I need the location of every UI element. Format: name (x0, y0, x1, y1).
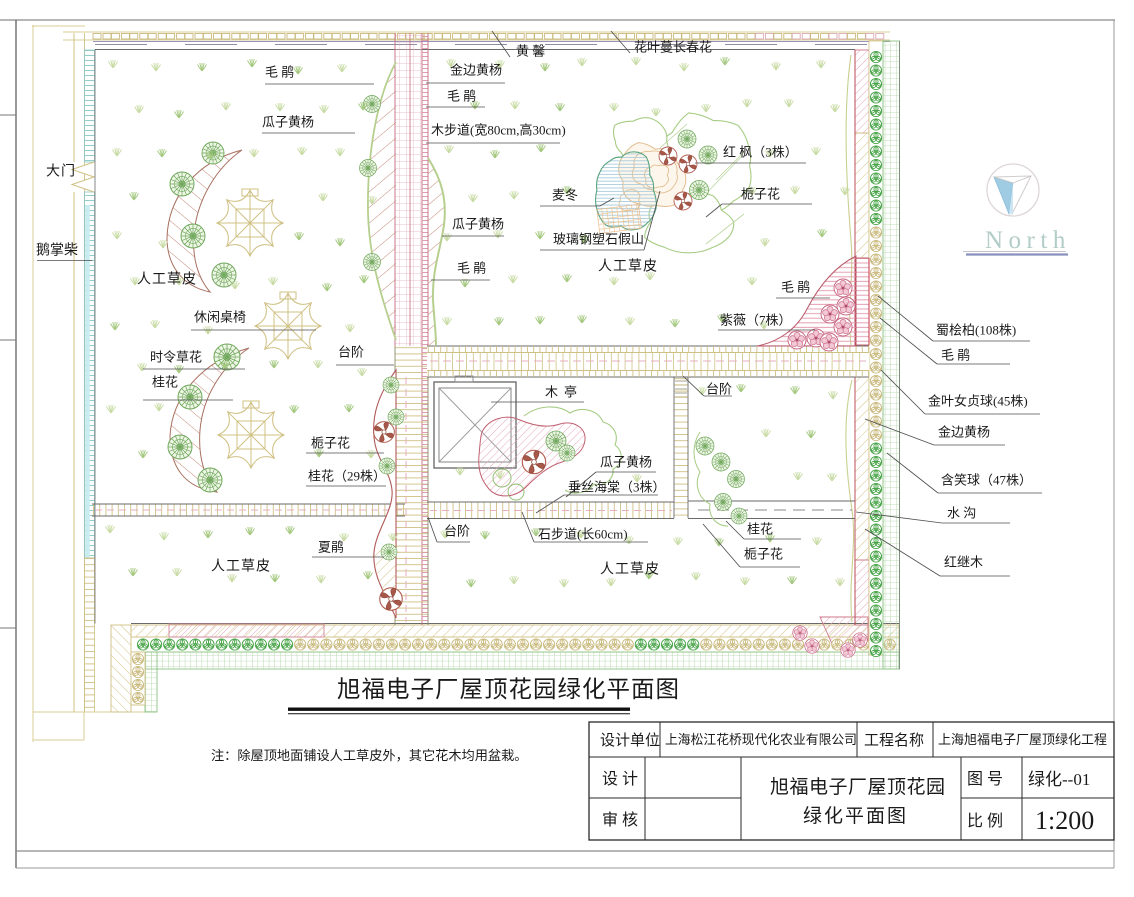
svg-text:瓜子黄杨: 瓜子黄杨 (452, 217, 504, 232)
svg-text:North: North (985, 227, 1071, 254)
svg-text:1:200: 1:200 (1035, 806, 1094, 835)
svg-text:栀子花: 栀子花 (311, 436, 350, 451)
svg-text:人工草皮: 人工草皮 (211, 558, 271, 574)
svg-text:毛 鹃: 毛 鹃 (447, 89, 476, 104)
svg-text:图 号: 图 号 (967, 770, 1003, 788)
svg-text:注：除屋顶地面铺设人工草皮外，其它花木均用盆栽。: 注：除屋顶地面铺设人工草皮外，其它花木均用盆栽。 (211, 747, 528, 763)
svg-text:石步道(长60cm): 石步道(长60cm) (538, 527, 628, 542)
svg-text:麦冬: 麦冬 (552, 188, 578, 203)
svg-text:桂花: 桂花 (747, 522, 773, 537)
svg-text:花叶蔓长春花: 花叶蔓长春花 (634, 40, 712, 55)
svg-text:绿化--01: 绿化--01 (1028, 770, 1090, 789)
svg-text:水 沟: 水 沟 (947, 506, 976, 521)
svg-text:栀子花: 栀子花 (741, 187, 780, 202)
svg-text:木亭: 木亭 (545, 385, 583, 400)
svg-text:红 枫（3株）: 红 枫（3株） (723, 145, 798, 160)
svg-text:设 计: 设 计 (602, 770, 638, 788)
svg-text:红继木: 红继木 (944, 555, 983, 570)
svg-text:木步道(宽80cm,高30cm): 木步道(宽80cm,高30cm) (431, 123, 566, 138)
svg-text:设计单位: 设计单位 (600, 732, 660, 749)
svg-text:台阶: 台阶 (706, 382, 732, 397)
svg-text:金边黄杨: 金边黄杨 (938, 425, 990, 440)
svg-text:审 核: 审 核 (602, 811, 638, 829)
svg-text:毛 鹃: 毛 鹃 (941, 348, 970, 363)
svg-text:瓜子黄杨: 瓜子黄杨 (262, 115, 314, 130)
svg-text:金叶女贞球(45株): 金叶女贞球(45株) (928, 394, 1028, 409)
svg-text:人工草皮: 人工草皮 (137, 271, 197, 287)
svg-text:瓜子黄杨: 瓜子黄杨 (600, 455, 652, 470)
svg-text:台阶: 台阶 (338, 345, 364, 360)
svg-text:毛 鹃: 毛 鹃 (457, 261, 486, 276)
svg-text:鹅掌柴: 鹅掌柴 (36, 241, 78, 258)
svg-text:毛 鹃: 毛 鹃 (265, 65, 294, 80)
svg-text:上海松江花桥现代化农业有限公司: 上海松江花桥现代化农业有限公司 (665, 732, 857, 747)
svg-text:含笑球（47株）: 含笑球（47株） (941, 473, 1032, 488)
svg-text:工程名称: 工程名称 (864, 732, 924, 749)
svg-text:绿化平面图: 绿化平面图 (803, 805, 908, 827)
svg-text:垂丝海棠（3株）: 垂丝海棠（3株） (568, 480, 666, 495)
svg-text:栀子花: 栀子花 (744, 547, 783, 562)
svg-text:比 例: 比 例 (967, 812, 1003, 830)
svg-text:毛 鹃: 毛 鹃 (781, 280, 810, 295)
svg-text:旭福电子厂屋顶花园绿化平面图: 旭福电子厂屋顶花园绿化平面图 (337, 676, 680, 703)
svg-text:桂花: 桂花 (152, 375, 178, 390)
svg-text:人工草皮: 人工草皮 (598, 258, 658, 274)
svg-text:金边黄杨: 金边黄杨 (450, 63, 502, 78)
svg-text:夏鹃: 夏鹃 (318, 540, 344, 555)
svg-text:台阶: 台阶 (444, 524, 470, 539)
svg-text:蜀桧柏(108株): 蜀桧柏(108株) (936, 323, 1016, 338)
svg-text:休闲桌椅: 休闲桌椅 (194, 310, 246, 325)
svg-text:黄 馨: 黄 馨 (516, 44, 545, 59)
svg-text:人工草皮: 人工草皮 (600, 561, 660, 577)
svg-text:紫薇（7株）: 紫薇（7株） (720, 313, 792, 328)
svg-text:玻璃钢塑石假山: 玻璃钢塑石假山 (553, 232, 644, 247)
svg-text:时令草花: 时令草花 (150, 350, 202, 365)
svg-text:桂花（29株）: 桂花（29株） (308, 469, 386, 484)
svg-text:大门: 大门 (46, 163, 76, 179)
svg-text:上海旭福电子厂屋顶绿化工程: 上海旭福电子厂屋顶绿化工程 (938, 732, 1107, 747)
svg-text:旭福电子厂屋顶花园: 旭福电子厂屋顶花园 (770, 776, 946, 798)
